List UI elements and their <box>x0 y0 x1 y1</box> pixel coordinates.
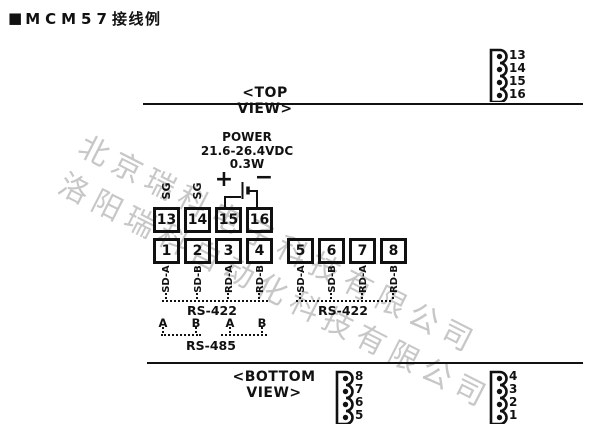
power-wattage: 0.3W <box>195 158 299 172</box>
tick <box>299 293 301 299</box>
pin-label-7: RD-A <box>357 261 369 297</box>
tick <box>165 293 167 299</box>
wiring-diagram: 北京瑞科电子科技有限公司 洛阳瑞科自动化科技有限公司 ■ MCM57 接线例 <… <box>0 0 600 438</box>
title-model-text: MCM57 <box>25 10 112 28</box>
page-title: ■ MCM57 接线例 <box>8 8 161 29</box>
connector-icon-bottom-left <box>334 370 356 424</box>
battery-plus-sign: + <box>213 169 235 191</box>
terminal-number: 13 <box>157 212 176 228</box>
terminal-16: 16 <box>246 207 273 233</box>
rs422-left-bracket <box>162 300 268 302</box>
terminal-number: 15 <box>219 212 238 228</box>
tick <box>229 327 231 333</box>
tick <box>392 293 394 299</box>
pin-label-1: SD-A <box>160 261 172 297</box>
terminal-14: 14 <box>184 207 211 233</box>
connector-bottom-right-pin-numbers: 4 3 2 1 <box>509 370 517 422</box>
terminal-number: 1 <box>162 243 172 259</box>
pin-number: 16 <box>509 88 526 101</box>
power-spec: POWER 21.6-26.4VDC 0.3W <box>195 131 299 172</box>
pin-label-2: SD-B <box>192 261 204 297</box>
terminal-number: 8 <box>389 243 399 259</box>
power-voltage: 21.6-26.4VDC <box>195 145 299 159</box>
terminal-number: 2 <box>193 243 203 259</box>
connector-icon-top-right <box>488 48 510 102</box>
tick <box>361 293 363 299</box>
terminal-number: 16 <box>250 212 269 228</box>
tick <box>162 327 164 333</box>
connector-top-right-pin-numbers: 13 14 15 16 <box>509 49 526 101</box>
tick <box>258 293 260 299</box>
tick <box>227 293 229 299</box>
terminal-number: 4 <box>255 243 265 259</box>
connector-icon-bottom-right <box>488 370 510 424</box>
rs485-label: RS-485 <box>180 338 242 353</box>
rs422-right-bracket <box>296 300 391 302</box>
bottom-view-rule <box>147 362 583 364</box>
tick <box>196 293 198 299</box>
power-title: POWER <box>195 131 299 145</box>
sg-label-1: SG <box>160 177 172 205</box>
pin-label-5: SD-A <box>295 261 307 297</box>
connector-bottom-left-pin-numbers: 8 7 6 5 <box>355 370 363 422</box>
rs485-bracket-1 <box>161 334 201 336</box>
sg-label-2: SG <box>191 177 203 205</box>
pin-label-8: RD-B <box>388 261 400 297</box>
title-suffix-text: 接线例 <box>112 8 162 29</box>
pin-label-3: RD-A <box>223 261 235 297</box>
tick <box>195 327 197 333</box>
terminal-number: 5 <box>296 243 306 259</box>
terminal-number: 3 <box>224 243 234 259</box>
pin-label-6: SD-B <box>326 261 338 297</box>
terminal-number: 7 <box>358 243 368 259</box>
pin-number: 1 <box>509 409 517 422</box>
pin-number: 5 <box>355 409 363 422</box>
tick <box>261 327 263 333</box>
terminal-13: 13 <box>153 207 180 233</box>
top-view-label: <TOP VIEW> <box>215 85 315 117</box>
terminal-15: 15 <box>215 207 242 233</box>
terminal-number: 14 <box>188 212 207 228</box>
tick <box>330 293 332 299</box>
title-bullet-icon: ■ <box>8 11 22 26</box>
battery-minus-sign: − <box>253 167 275 189</box>
rs422-right-label: RS-422 <box>312 303 374 318</box>
rs485-bracket-2 <box>221 334 267 336</box>
terminal-number: 6 <box>327 243 337 259</box>
pin-label-4: RD-B <box>254 261 266 297</box>
bottom-view-label: <BOTTOM VIEW> <box>216 369 332 401</box>
top-view-rule <box>143 103 583 105</box>
